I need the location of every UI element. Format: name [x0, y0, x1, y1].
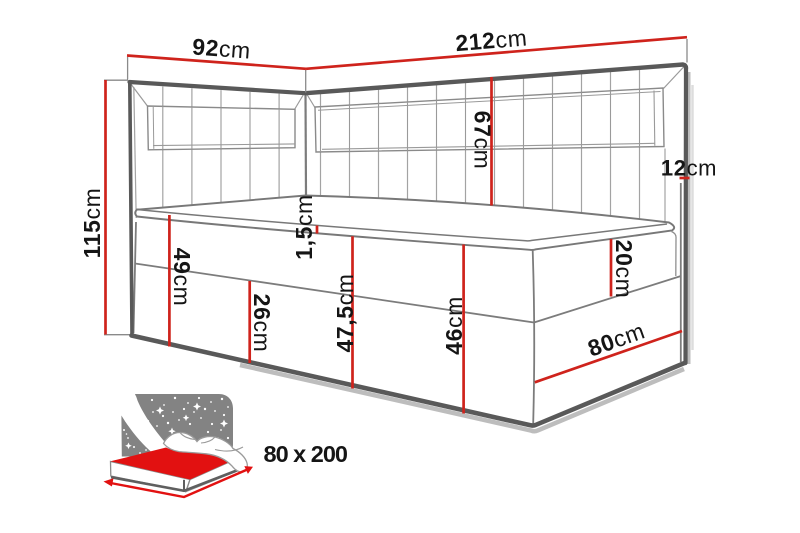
svg-text:49cm: 49cm — [169, 248, 195, 307]
svg-text:20cm: 20cm — [611, 240, 637, 299]
svg-text:67cm: 67cm — [470, 111, 496, 170]
svg-text:115cm: 115cm — [79, 188, 105, 259]
svg-text:46cm: 46cm — [441, 296, 467, 355]
svg-text:1,5cm: 1,5cm — [291, 194, 317, 260]
svg-text:12cm: 12cm — [661, 156, 717, 181]
svg-text:47,5cm: 47,5cm — [332, 273, 358, 352]
svg-text:80 x 200: 80 x 200 — [264, 441, 348, 467]
svg-text:92cm: 92cm — [191, 33, 251, 63]
svg-text:26cm: 26cm — [249, 294, 275, 353]
